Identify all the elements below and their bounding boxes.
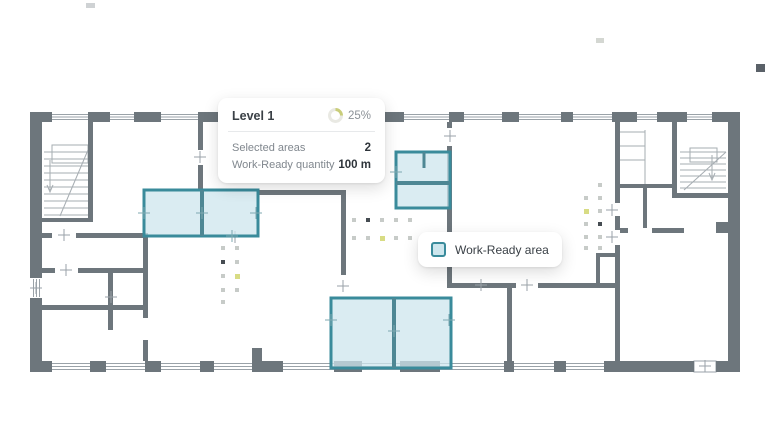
level-info-card: Level 1 25% Selected areas 2 Work-Ready … [218,98,385,183]
selected-areas-label: Selected areas [232,140,305,157]
work-ready-area-3[interactable] [331,298,451,368]
left-staircase [44,145,88,216]
work-ready-quantity-value: 100 m [338,157,371,174]
legend-label: Work-Ready area [455,243,549,257]
work-ready-legend[interactable]: Work-Ready area [418,232,562,267]
stray-markers [86,3,765,72]
work-ready-quantity-label: Work-Ready quantity [232,157,335,174]
floor-plan-canvas [0,0,768,442]
work-ready-swatch-icon [431,242,446,257]
progress-indicator: 25% [328,108,371,123]
selected-areas-value: 2 [365,140,371,157]
card-divider [228,131,375,132]
work-ready-quantity-row: Work-Ready quantity 100 m [232,157,371,174]
progress-ring-icon [328,108,343,123]
right-staircase [680,148,726,190]
selected-areas-row: Selected areas 2 [232,140,371,157]
progress-percent: 25% [348,110,371,122]
work-ready-areas [138,152,455,368]
level-title: Level 1 [232,109,274,123]
card-header: Level 1 25% [232,108,371,123]
floor-plan-viewer: Level 1 25% Selected areas 2 Work-Ready … [0,0,768,442]
